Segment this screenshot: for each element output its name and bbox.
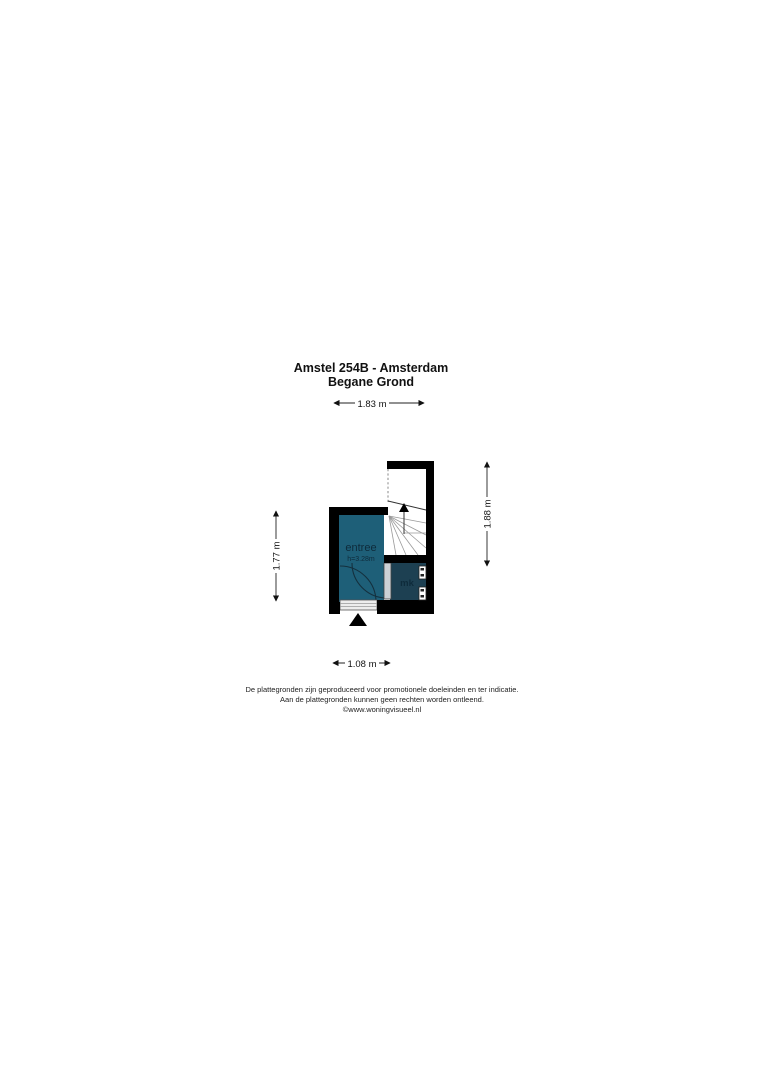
mk-label: mk bbox=[400, 578, 414, 589]
entrance-arrow-icon bbox=[349, 613, 367, 626]
dimension-left-value: 1.77 m bbox=[272, 541, 283, 570]
dimension-bottom: 1.08 m bbox=[333, 656, 390, 670]
entree-height-label: h=3.28m bbox=[347, 556, 375, 563]
floorplan-page: Amstel 254B - Amsterdam Begane Grond bbox=[0, 0, 764, 1080]
dimension-left: 1.77 m bbox=[270, 511, 283, 601]
front-door-sill bbox=[340, 600, 377, 610]
floorplan-drawing: entree h=3.28m mk 1.83 m 1.08 m 1.77 m 1… bbox=[0, 0, 764, 1080]
entree-label: entree bbox=[345, 542, 376, 554]
copyright-line: ©www.woningvisueel.nl bbox=[0, 705, 764, 715]
staircase bbox=[388, 469, 426, 555]
disclaimer-line-2: Aan de plattegronden kunnen geen rechten… bbox=[0, 695, 764, 705]
dimension-bottom-value: 1.08 m bbox=[347, 659, 376, 670]
disclaimer: De plattegronden zijn geproduceerd voor … bbox=[0, 685, 764, 715]
dimension-top: 1.83 m bbox=[334, 396, 424, 410]
inner-door-leaf bbox=[384, 563, 391, 599]
dimension-right: 1.88 m bbox=[481, 462, 494, 566]
dimension-right-value: 1.88 m bbox=[483, 499, 494, 528]
disclaimer-line-1: De plattegronden zijn geproduceerd voor … bbox=[0, 685, 764, 695]
dimension-top-value: 1.83 m bbox=[357, 399, 386, 410]
stair-treads bbox=[389, 516, 426, 555]
